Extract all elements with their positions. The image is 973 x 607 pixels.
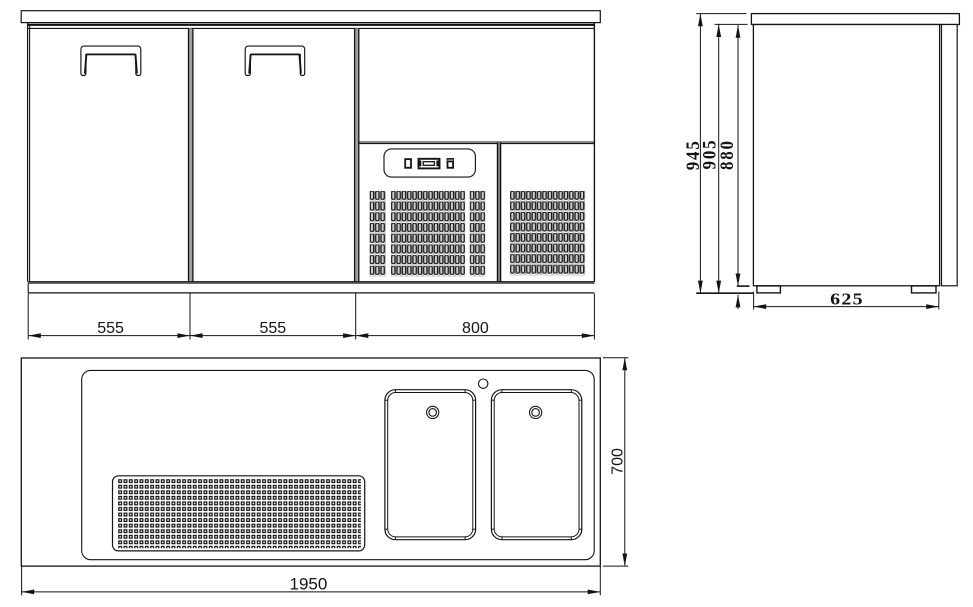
- svg-text:555: 555: [259, 320, 286, 337]
- svg-text:700: 700: [610, 448, 627, 475]
- svg-text:800: 800: [462, 320, 489, 337]
- svg-text:1950: 1950: [289, 575, 327, 594]
- svg-text:880: 880: [716, 139, 737, 170]
- svg-text:555: 555: [97, 320, 124, 337]
- svg-text:625: 625: [830, 291, 864, 309]
